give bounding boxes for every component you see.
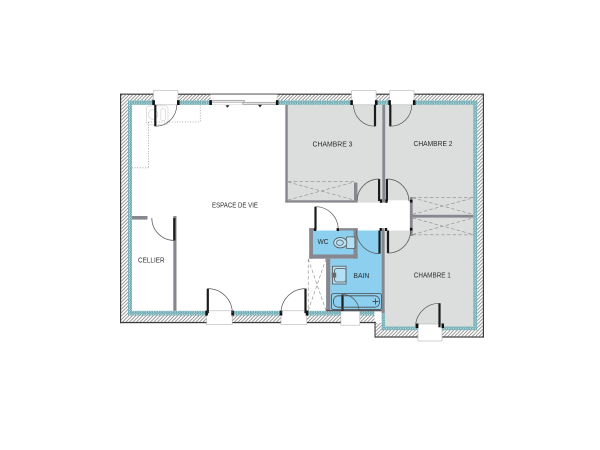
svg-text:CELLIER: CELLIER bbox=[138, 255, 165, 264]
svg-text:ESPACE DE VIE: ESPACE DE VIE bbox=[212, 200, 258, 209]
svg-text:BAIN: BAIN bbox=[353, 271, 369, 280]
svg-text:WC: WC bbox=[318, 237, 329, 246]
svg-text:CHAMBRE 1: CHAMBRE 1 bbox=[414, 271, 451, 280]
svg-text:CHAMBRE 2: CHAMBRE 2 bbox=[414, 139, 453, 148]
svg-text:CHAMBRE 3: CHAMBRE 3 bbox=[313, 139, 353, 148]
